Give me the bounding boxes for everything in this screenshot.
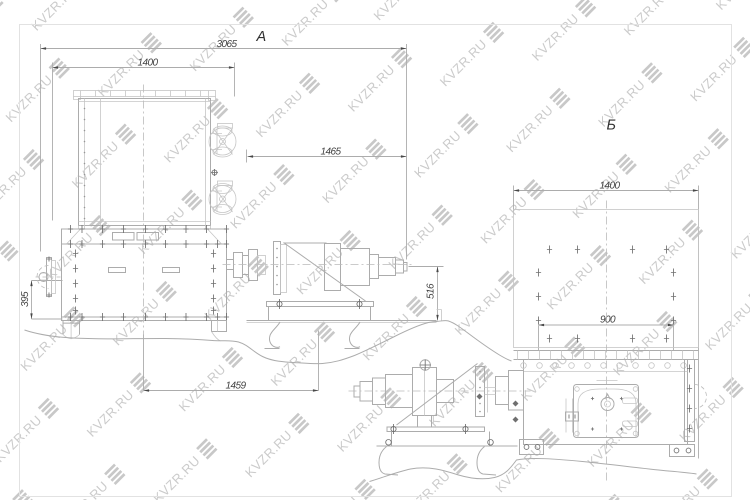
svg-text:395: 395 bbox=[20, 291, 31, 307]
svg-text:1400: 1400 bbox=[599, 180, 620, 191]
svg-text:Б: Б bbox=[606, 118, 615, 134]
svg-text:516: 516 bbox=[425, 283, 436, 299]
svg-text:1465: 1465 bbox=[320, 146, 341, 157]
svg-text:А: А bbox=[255, 29, 266, 45]
svg-text:1459: 1459 bbox=[225, 380, 246, 391]
svg-text:900: 900 bbox=[600, 314, 616, 325]
svg-text:1400: 1400 bbox=[137, 57, 158, 68]
svg-text:3065: 3065 bbox=[216, 39, 237, 50]
